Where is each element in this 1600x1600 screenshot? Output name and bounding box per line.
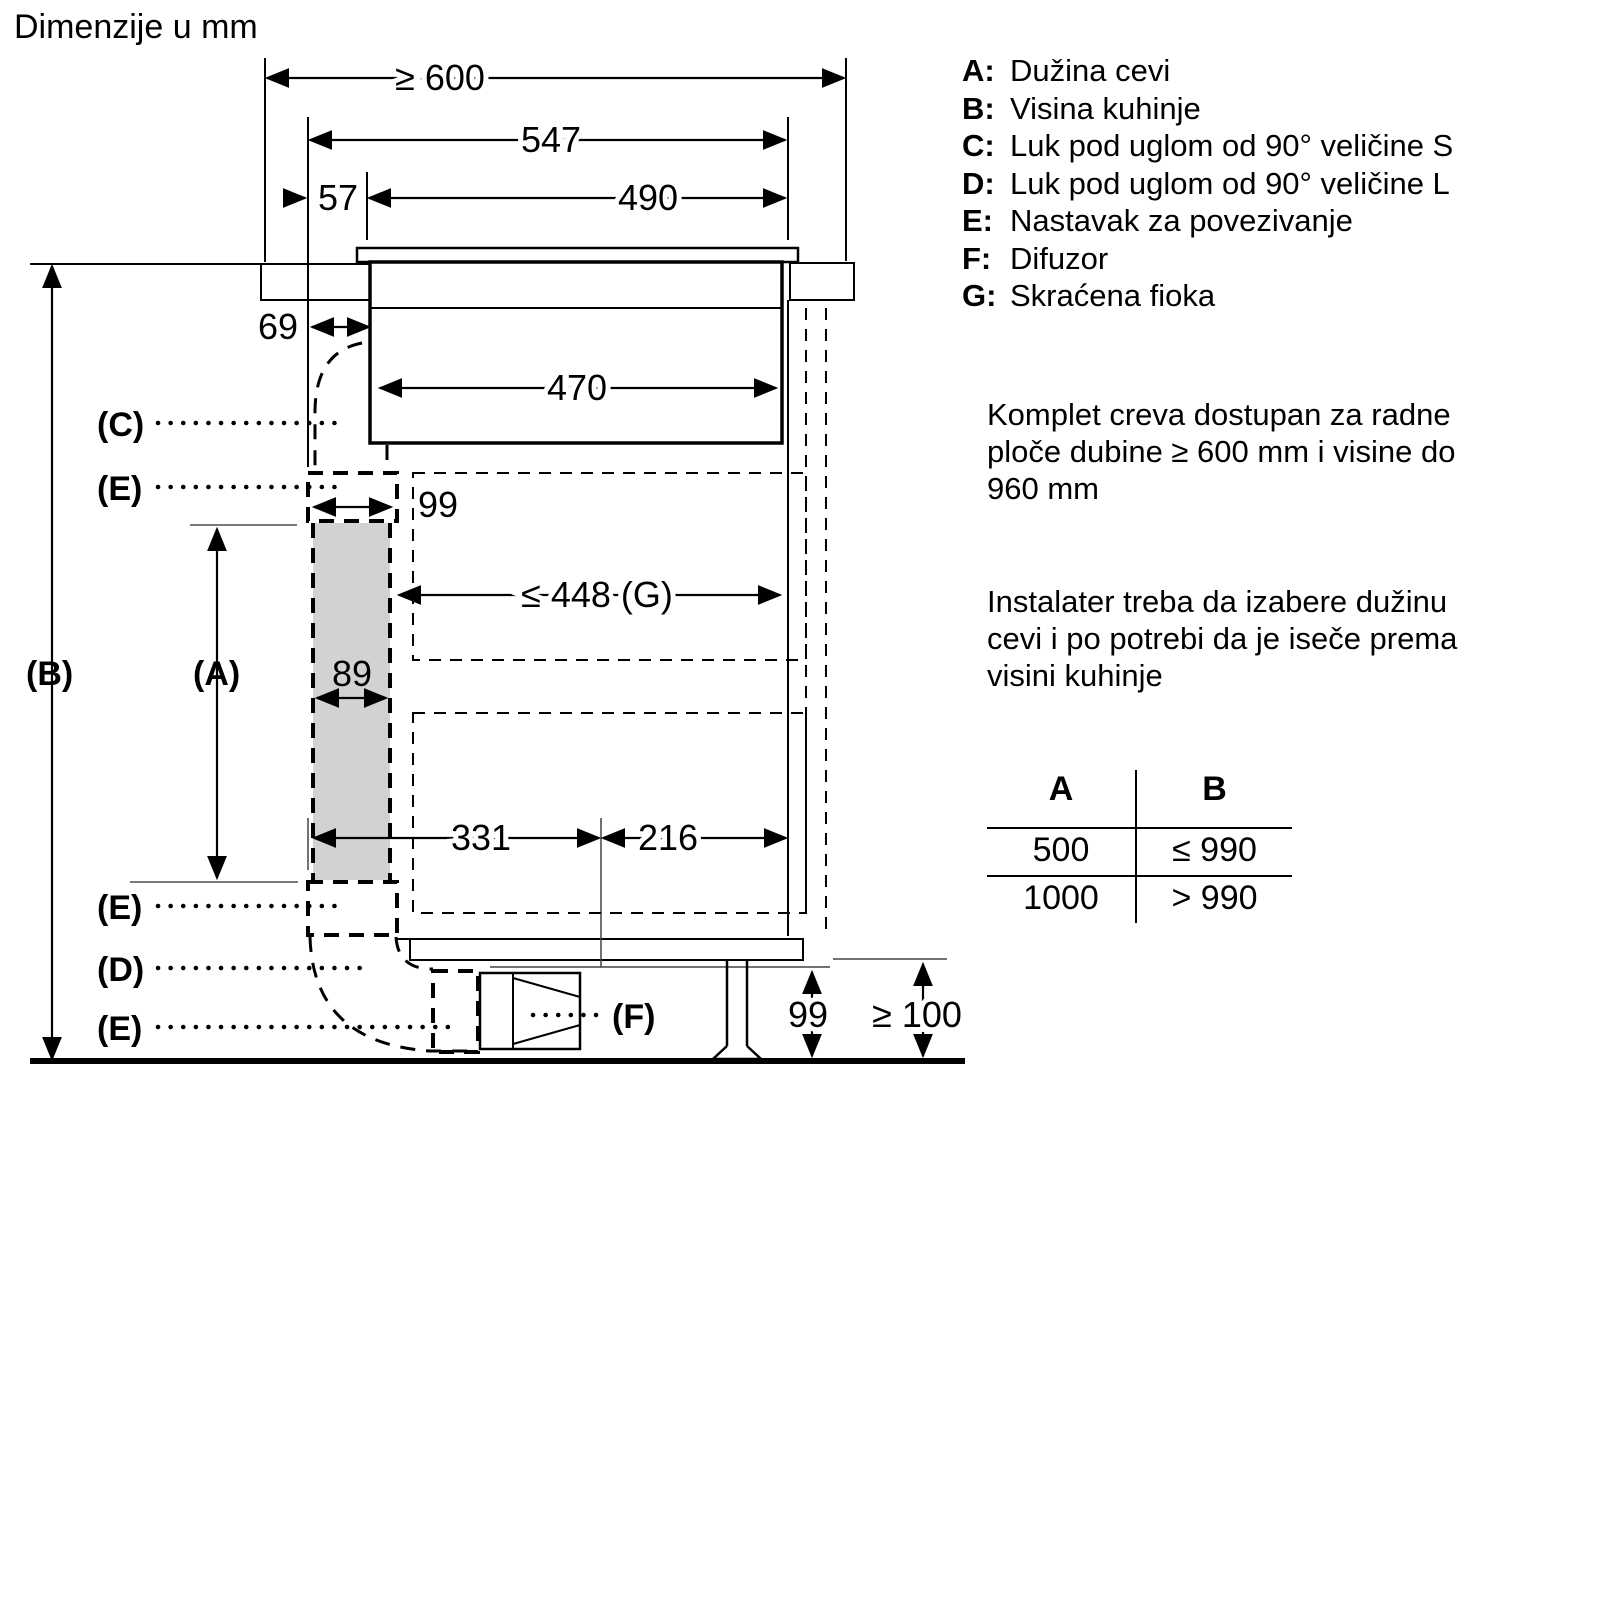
note-line: visini kuhinje	[987, 657, 1517, 694]
duct-pipe	[313, 523, 390, 880]
legend-key: A:	[962, 52, 1010, 90]
dim-cutout: 490	[618, 177, 678, 218]
plinth-leg	[713, 960, 761, 1059]
label-d: (D)	[97, 951, 144, 989]
dim-worktop-depth: ≥ 600	[395, 57, 485, 98]
legend-text: Skraćena fioka	[1010, 277, 1215, 315]
table-row: 1000 > 990	[987, 875, 1292, 923]
elbow-d-outer	[310, 937, 477, 1051]
dim-front-span: 331	[451, 817, 511, 858]
table-header-b: B	[1137, 770, 1292, 827]
legend-item: B:Visina kuhinje	[962, 90, 1453, 128]
dim-plinth-height: 99	[788, 994, 828, 1035]
installation-diagram: ≥ 600 547 57 490 69 470 99 ≤ 448 (G) 89 …	[0, 0, 1000, 1090]
table-cell: > 990	[1137, 875, 1292, 923]
elbow-c-outer	[315, 343, 362, 467]
legend-item: D:Luk pod uglom od 90° veličine L	[962, 165, 1453, 203]
table-header-a: A	[987, 770, 1137, 827]
hob-glass	[357, 248, 798, 262]
note-line: 960 mm	[987, 470, 1517, 507]
ab-table: A B 500 ≤ 990 1000 > 990	[987, 770, 1292, 923]
note-line: Komplet creva dostupan za radne	[987, 396, 1517, 433]
legend: A:Dužina cevi B:Visina kuhinje C:Luk pod…	[962, 52, 1453, 315]
note-installer: Instalater treba da izabere dužinu cevi …	[987, 583, 1517, 694]
legend-text: Nastavak za povezivanje	[1010, 202, 1353, 240]
legend-item: A:Dužina cevi	[962, 52, 1453, 90]
legend-text: Visina kuhinje	[1010, 90, 1201, 128]
legend-key: G:	[962, 277, 1010, 315]
legend-key: D:	[962, 165, 1010, 203]
table-row: 500 ≤ 990	[987, 827, 1292, 875]
dim-duct-clearance: 69	[258, 306, 298, 347]
legend-item: E:Nastavak za povezivanje	[962, 202, 1453, 240]
legend-item: F:Difuzor	[962, 240, 1453, 278]
table-cell: 500	[987, 827, 1137, 875]
note-line: Instalater treba da izabere dužinu	[987, 583, 1517, 620]
legend-item: G:Skraćena fioka	[962, 277, 1453, 315]
table-cell: 1000	[987, 875, 1137, 923]
legend-text: Difuzor	[1010, 240, 1108, 278]
legend-text: Dužina cevi	[1010, 52, 1170, 90]
dim-connector-height: 99	[418, 484, 458, 525]
dim-rear-offset: 57	[318, 177, 358, 218]
legend-key: F:	[962, 240, 1010, 278]
connector-e1	[308, 473, 397, 521]
dim-body-width: 470	[547, 367, 607, 408]
page: { "title": "Dimenzije u mm", "legend": […	[0, 0, 1600, 1600]
label-b: (B)	[26, 655, 73, 693]
elbow-d-inner	[396, 937, 433, 969]
legend-key: B:	[962, 90, 1010, 128]
label-e-lower: (E)	[97, 1010, 142, 1048]
legend-key: C:	[962, 127, 1010, 165]
label-f: (F)	[612, 998, 655, 1036]
legend-text: Luk pod uglom od 90° veličine L	[1010, 165, 1450, 203]
legend-item: C:Luk pod uglom od 90° veličine S	[962, 127, 1453, 165]
cabinet-bottom-panel	[396, 939, 803, 960]
legend-text: Luk pod uglom od 90° veličine S	[1010, 127, 1453, 165]
table-cell: ≤ 990	[1137, 827, 1292, 875]
lower-drawer	[413, 713, 806, 913]
dim-duct-width: 89	[332, 653, 372, 694]
note-line: cevi i po potrebi da je iseče prema	[987, 620, 1517, 657]
dim-rear-span: 216	[638, 817, 698, 858]
dim-drawer: ≤ 448 (G)	[521, 574, 673, 615]
connector-e2	[308, 882, 397, 935]
hob-body	[370, 262, 782, 443]
dim-hob-total: 547	[521, 119, 581, 160]
label-e-upper: (E)	[97, 470, 142, 508]
dim-floor-gap: ≥ 100	[872, 994, 962, 1035]
note-line: ploče dubine ≥ 600 mm i visine do	[987, 433, 1517, 470]
label-a: (A)	[193, 655, 240, 693]
label-e-mid: (E)	[97, 889, 142, 927]
note-hose-kit: Komplet creva dostupan za radne ploče du…	[987, 396, 1517, 507]
shortened-drawer-g	[413, 473, 806, 660]
label-c: (C)	[97, 406, 144, 444]
table-header-row: A B	[987, 770, 1292, 827]
connector-e3	[433, 971, 478, 1052]
dimension-lines	[52, 78, 923, 1059]
legend-key: E:	[962, 202, 1010, 240]
diffuser	[480, 973, 580, 1049]
